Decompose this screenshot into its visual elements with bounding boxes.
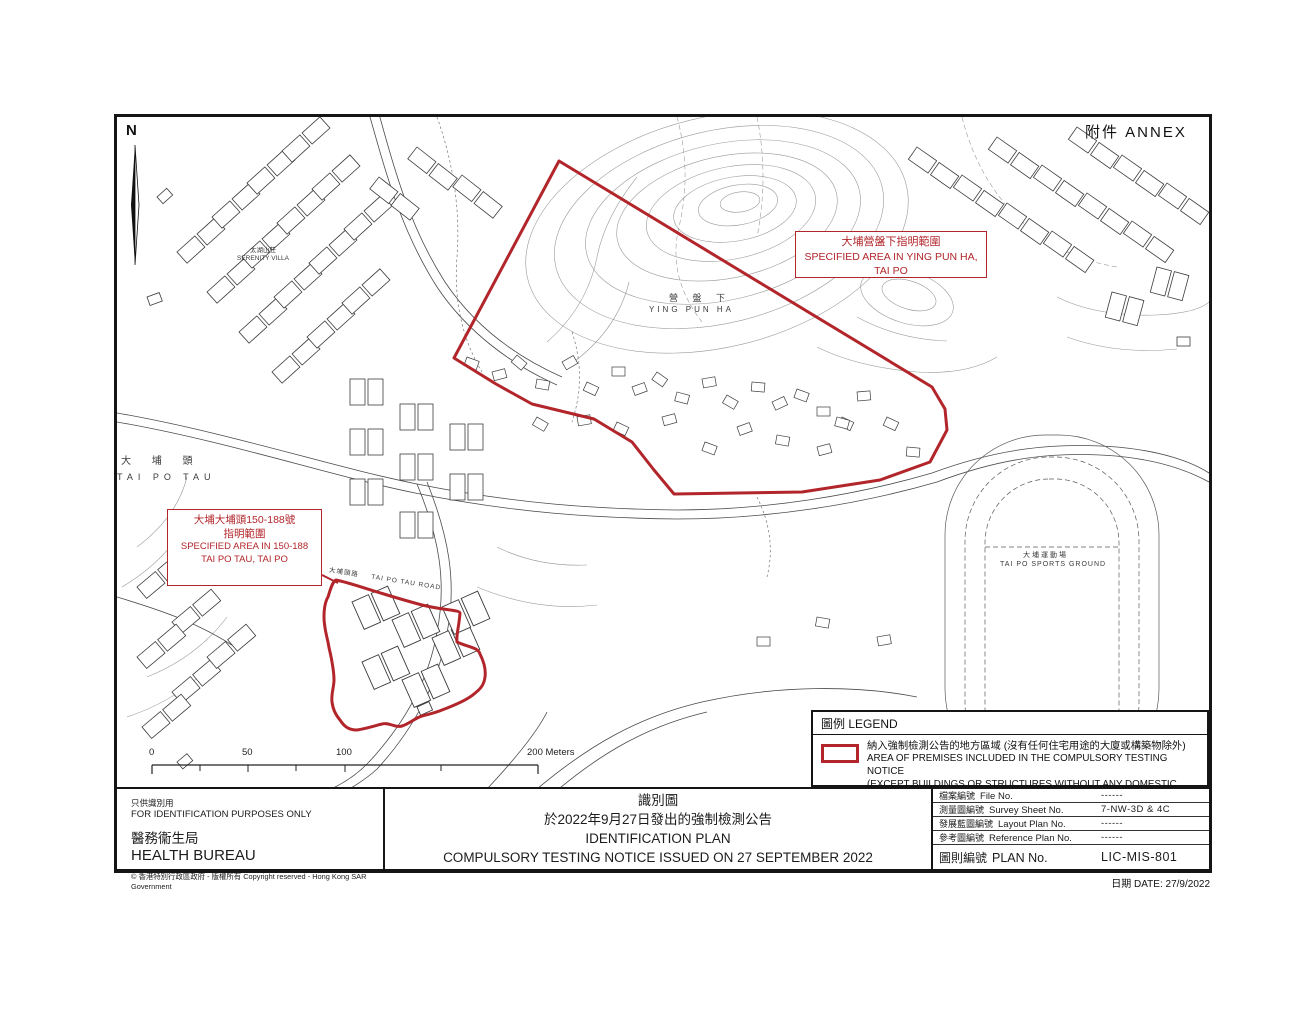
plan-title-zh2: 於2022年9月27日發出的強制檢測公告 bbox=[385, 810, 931, 829]
label-serenity-villa-en: SERENITY VILLA bbox=[237, 255, 289, 263]
callout-tai-po-tau-zh2: 指明範圍 bbox=[168, 527, 321, 541]
title-block-left: 只供識別用 FOR IDENTIFICATION PURPOSES ONLY 醫… bbox=[117, 789, 385, 869]
identification-plan-sheet: 附件 ANNEX N 大 埔 頭 TAI PO TAU 營 盤 下 YING P… bbox=[0, 0, 1308, 1012]
legend-title: 圖例 LEGEND bbox=[813, 712, 1207, 735]
file-no-label-en: File No. bbox=[980, 791, 1013, 802]
reference-plan-row: 參考圖編號Reference Plan No. ------ bbox=[933, 831, 1209, 845]
file-no-value: ------ bbox=[1101, 790, 1123, 801]
annex-label: 附件 ANNEX bbox=[1085, 121, 1187, 142]
label-sports-ground-en: TAI PO SPORTS GROUND bbox=[1000, 561, 1106, 568]
callout-tai-po-tau-en1: SPECIFIED AREA IN 150-188 bbox=[168, 541, 321, 554]
plan-no-label-zh: 圖則編號 bbox=[939, 851, 987, 865]
survey-sheet-row: 測量圖編號Survey Sheet No. 7-NW-3D & 4C bbox=[933, 803, 1209, 817]
label-tai-po-tau-zh: 大 埔 頭 bbox=[121, 452, 202, 467]
legend-item-zh: 納入強制檢測公告的地方區域 (沒有任何住宅用途的大廈或構築物除外) bbox=[867, 740, 1201, 753]
note-en: FOR IDENTIFICATION PURPOSES ONLY bbox=[131, 809, 383, 820]
layout-plan-label-zh: 發展藍圖編號 bbox=[939, 819, 993, 829]
survey-sheet-label-zh: 測量圖編號 bbox=[939, 805, 984, 815]
label-tai-po-tau-en: TAI PO TAU bbox=[117, 472, 216, 482]
file-no-row: 檔案編號File No. ------ bbox=[933, 789, 1209, 803]
layout-plan-label-en: Layout Plan No. bbox=[998, 819, 1066, 830]
copyright-line: © 香港特別行政區政府 - 版權所有 Copyright reserved - … bbox=[131, 871, 383, 891]
reference-plan-label-en: Reference Plan No. bbox=[989, 833, 1072, 844]
callout-tai-po-tau-zh1: 大埔大埔頭150-188號 bbox=[168, 513, 321, 527]
label-serenity-villa-zh: 太湖山莊 bbox=[237, 247, 289, 255]
file-no-label-zh: 檔案編號 bbox=[939, 791, 975, 801]
scale-bar-line bbox=[150, 757, 590, 777]
plan-no-row: 圖則編號PLAN No. LIC-MIS-801 bbox=[933, 845, 1209, 869]
org-zh: 醫務衞生局 bbox=[131, 827, 383, 847]
title-block-right: 檔案編號File No. ------ 測量圖編號Survey Sheet No… bbox=[931, 789, 1209, 869]
layout-plan-value: ------ bbox=[1101, 818, 1123, 829]
callout-ying-pun-ha-en: SPECIFIED AREA IN YING PUN HA, TAI PO bbox=[796, 250, 986, 278]
scale-bar: 0 50 100 200 Meters bbox=[150, 747, 590, 777]
callout-tai-po-tau-en2: TAI PO TAU, TAI PO bbox=[168, 554, 321, 567]
survey-sheet-value: 7-NW-3D & 4C bbox=[1101, 804, 1170, 815]
org-en: HEALTH BUREAU bbox=[131, 847, 383, 864]
label-ying-pun-ha-en: YING PUN HA bbox=[649, 305, 734, 314]
legend-box: 圖例 LEGEND 納入強制檢測公告的地方區域 (沒有任何住宅用途的大廈或構築物… bbox=[811, 710, 1209, 787]
callout-ying-pun-ha-zh: 大埔營盤下指明範圍 bbox=[796, 235, 986, 250]
north-arrow-icon bbox=[117, 117, 157, 287]
reference-plan-label-zh: 參考圖編號 bbox=[939, 833, 984, 843]
plan-no-value: LIC-MIS-801 bbox=[1101, 850, 1177, 864]
plan-no-label-en: PLAN No. bbox=[992, 851, 1048, 865]
title-block: 只供識別用 FOR IDENTIFICATION PURPOSES ONLY 醫… bbox=[114, 787, 1212, 872]
date-label: 日期 DATE: 27/9/2022 bbox=[1000, 875, 1210, 890]
legend-red-area-symbol bbox=[821, 744, 859, 763]
label-ying-pun-ha-zh: 營 盤 下 bbox=[669, 291, 731, 304]
survey-sheet-label-en: Survey Sheet No. bbox=[989, 805, 1063, 816]
callout-ying-pun-ha: 大埔營盤下指明範圍 SPECIFIED AREA IN YING PUN HA,… bbox=[795, 231, 987, 278]
layout-plan-row: 發展藍圖編號Layout Plan No. ------ bbox=[933, 817, 1209, 831]
note-zh: 只供識別用 bbox=[131, 797, 383, 809]
plan-title-en1: IDENTIFICATION PLAN bbox=[385, 829, 931, 848]
plan-title-zh1: 識別圖 bbox=[385, 791, 931, 810]
reference-plan-value: ------ bbox=[1101, 832, 1123, 843]
callout-tai-po-tau: 大埔大埔頭150-188號 指明範圍 SPECIFIED AREA IN 150… bbox=[167, 509, 322, 586]
plan-title-en2: COMPULSORY TESTING NOTICE ISSUED ON 27 S… bbox=[385, 848, 931, 867]
title-block-center: 識別圖 於2022年9月27日發出的強制檢測公告 IDENTIFICATION … bbox=[385, 789, 931, 869]
legend-item-en1: AREA OF PREMISES INCLUDED IN THE COMPULS… bbox=[867, 753, 1201, 778]
label-serenity-villa: 太湖山莊 SERENITY VILLA bbox=[237, 247, 289, 264]
label-sports-ground-zh: 大埔運動場 bbox=[1023, 550, 1068, 560]
